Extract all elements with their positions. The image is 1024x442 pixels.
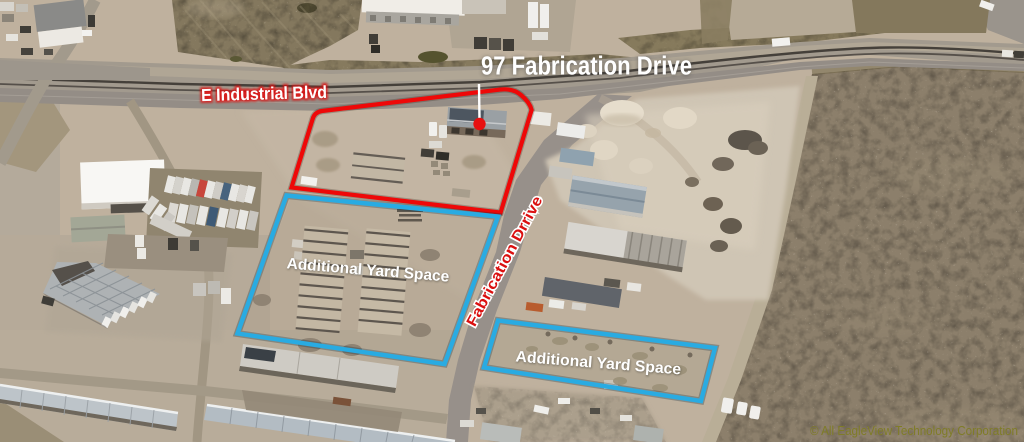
svg-text:97 Fabrication Drive: 97 Fabrication Drive <box>481 53 692 81</box>
svg-text:© All EagleView Technology Cor: © All EagleView Technology Corporation <box>810 424 1018 438</box>
svg-text:E Industrial Blvd: E Industrial Blvd <box>201 82 327 105</box>
